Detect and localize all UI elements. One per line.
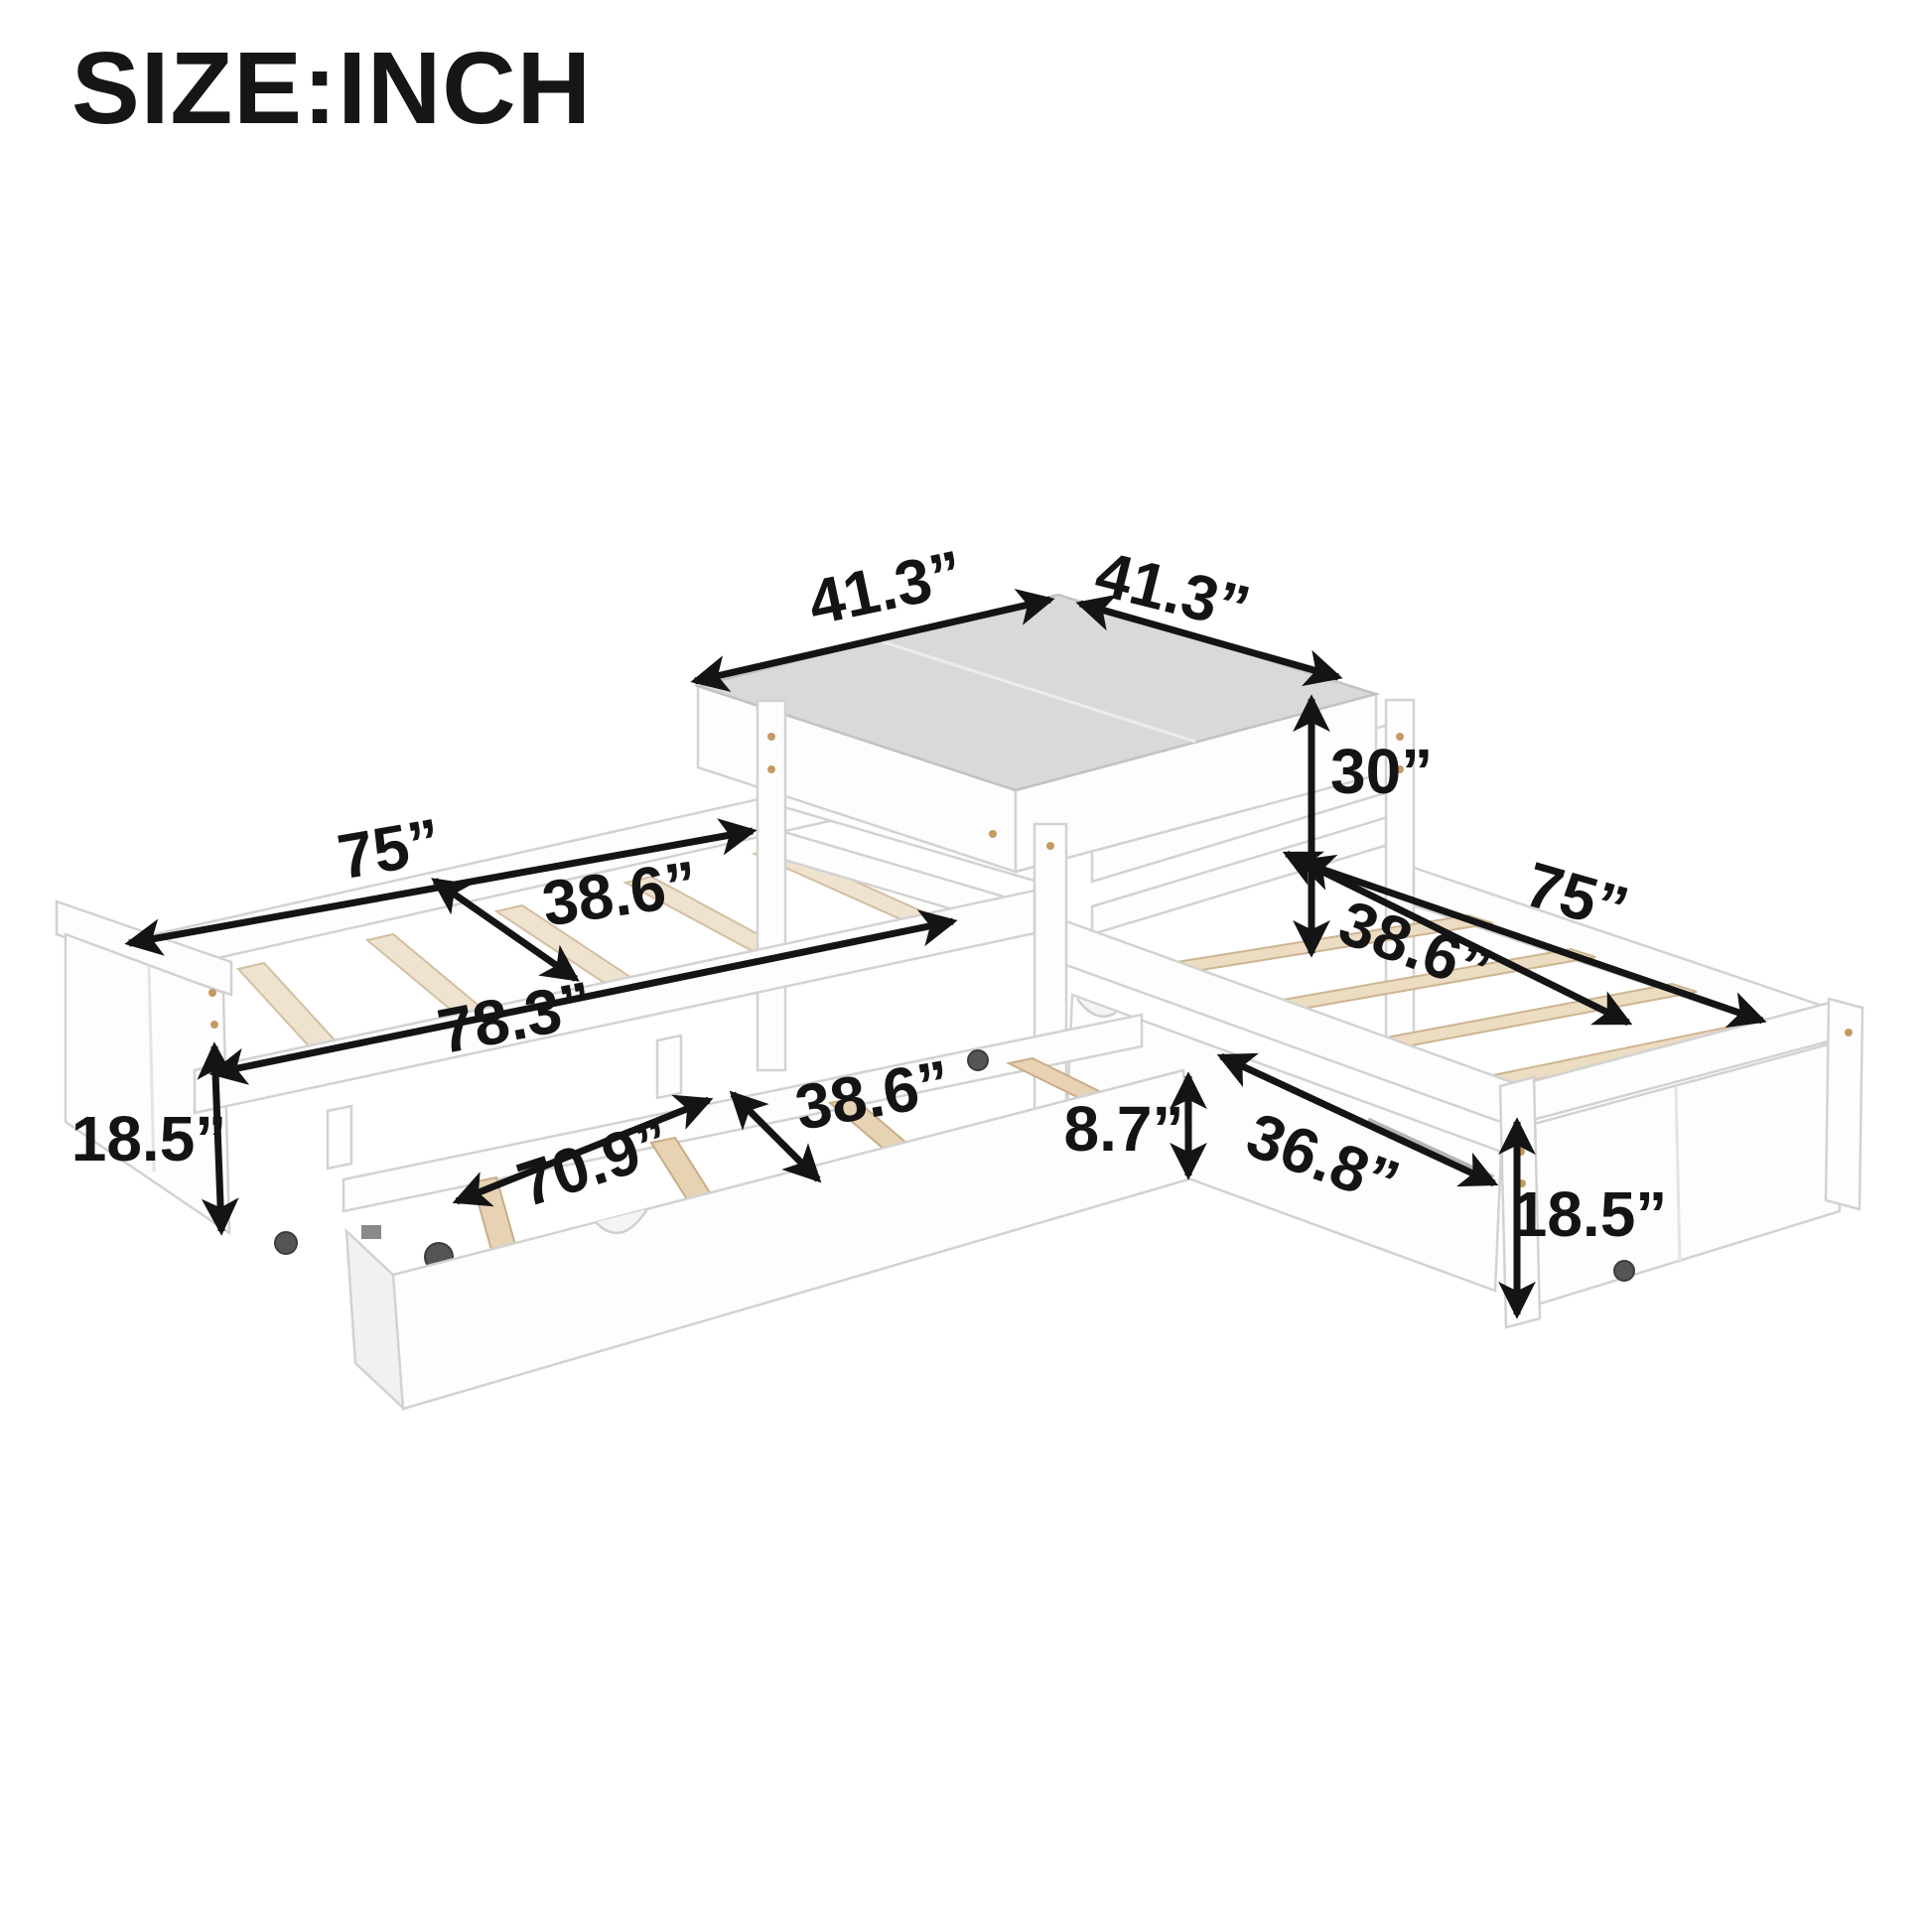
right-bed-footboard-far-post xyxy=(1826,999,1863,1209)
screw xyxy=(1845,1029,1853,1036)
caster-wheel xyxy=(968,1050,988,1070)
trundle-bracket xyxy=(361,1225,381,1239)
left-bed-leg xyxy=(328,1106,351,1169)
dimension-label: 78.3” xyxy=(432,968,598,1068)
corner-left-headboard-post xyxy=(758,701,785,1070)
screw xyxy=(767,733,775,741)
trundle-end-cap xyxy=(346,1231,403,1408)
dimension-label: 18.5” xyxy=(1512,1178,1668,1250)
left-bed-leg xyxy=(657,1035,681,1098)
product-size-diagram: SIZE:INCH xyxy=(0,0,1932,1932)
dimension-label: 38.6” xyxy=(790,1046,956,1144)
trundle-bed xyxy=(275,1015,1188,1409)
screw xyxy=(1046,842,1054,850)
screw xyxy=(208,989,216,997)
dimension-label: 70.9” xyxy=(509,1105,679,1221)
caster-wheel xyxy=(1614,1261,1634,1281)
dimension-left-bed-overall-length: 78.3” xyxy=(213,921,953,1073)
screw xyxy=(767,765,775,773)
dimension-label: 30” xyxy=(1330,736,1433,807)
caster-wheel xyxy=(275,1232,297,1254)
bed-dimension-illustration: 41.3” 41.3” 30” 75” 38.6” 78.3” xyxy=(0,0,1932,1932)
screw xyxy=(210,1021,218,1029)
dimension-label: 18.5” xyxy=(71,1103,227,1174)
screw xyxy=(989,830,997,838)
dimension-label: 8.7” xyxy=(1064,1093,1184,1165)
